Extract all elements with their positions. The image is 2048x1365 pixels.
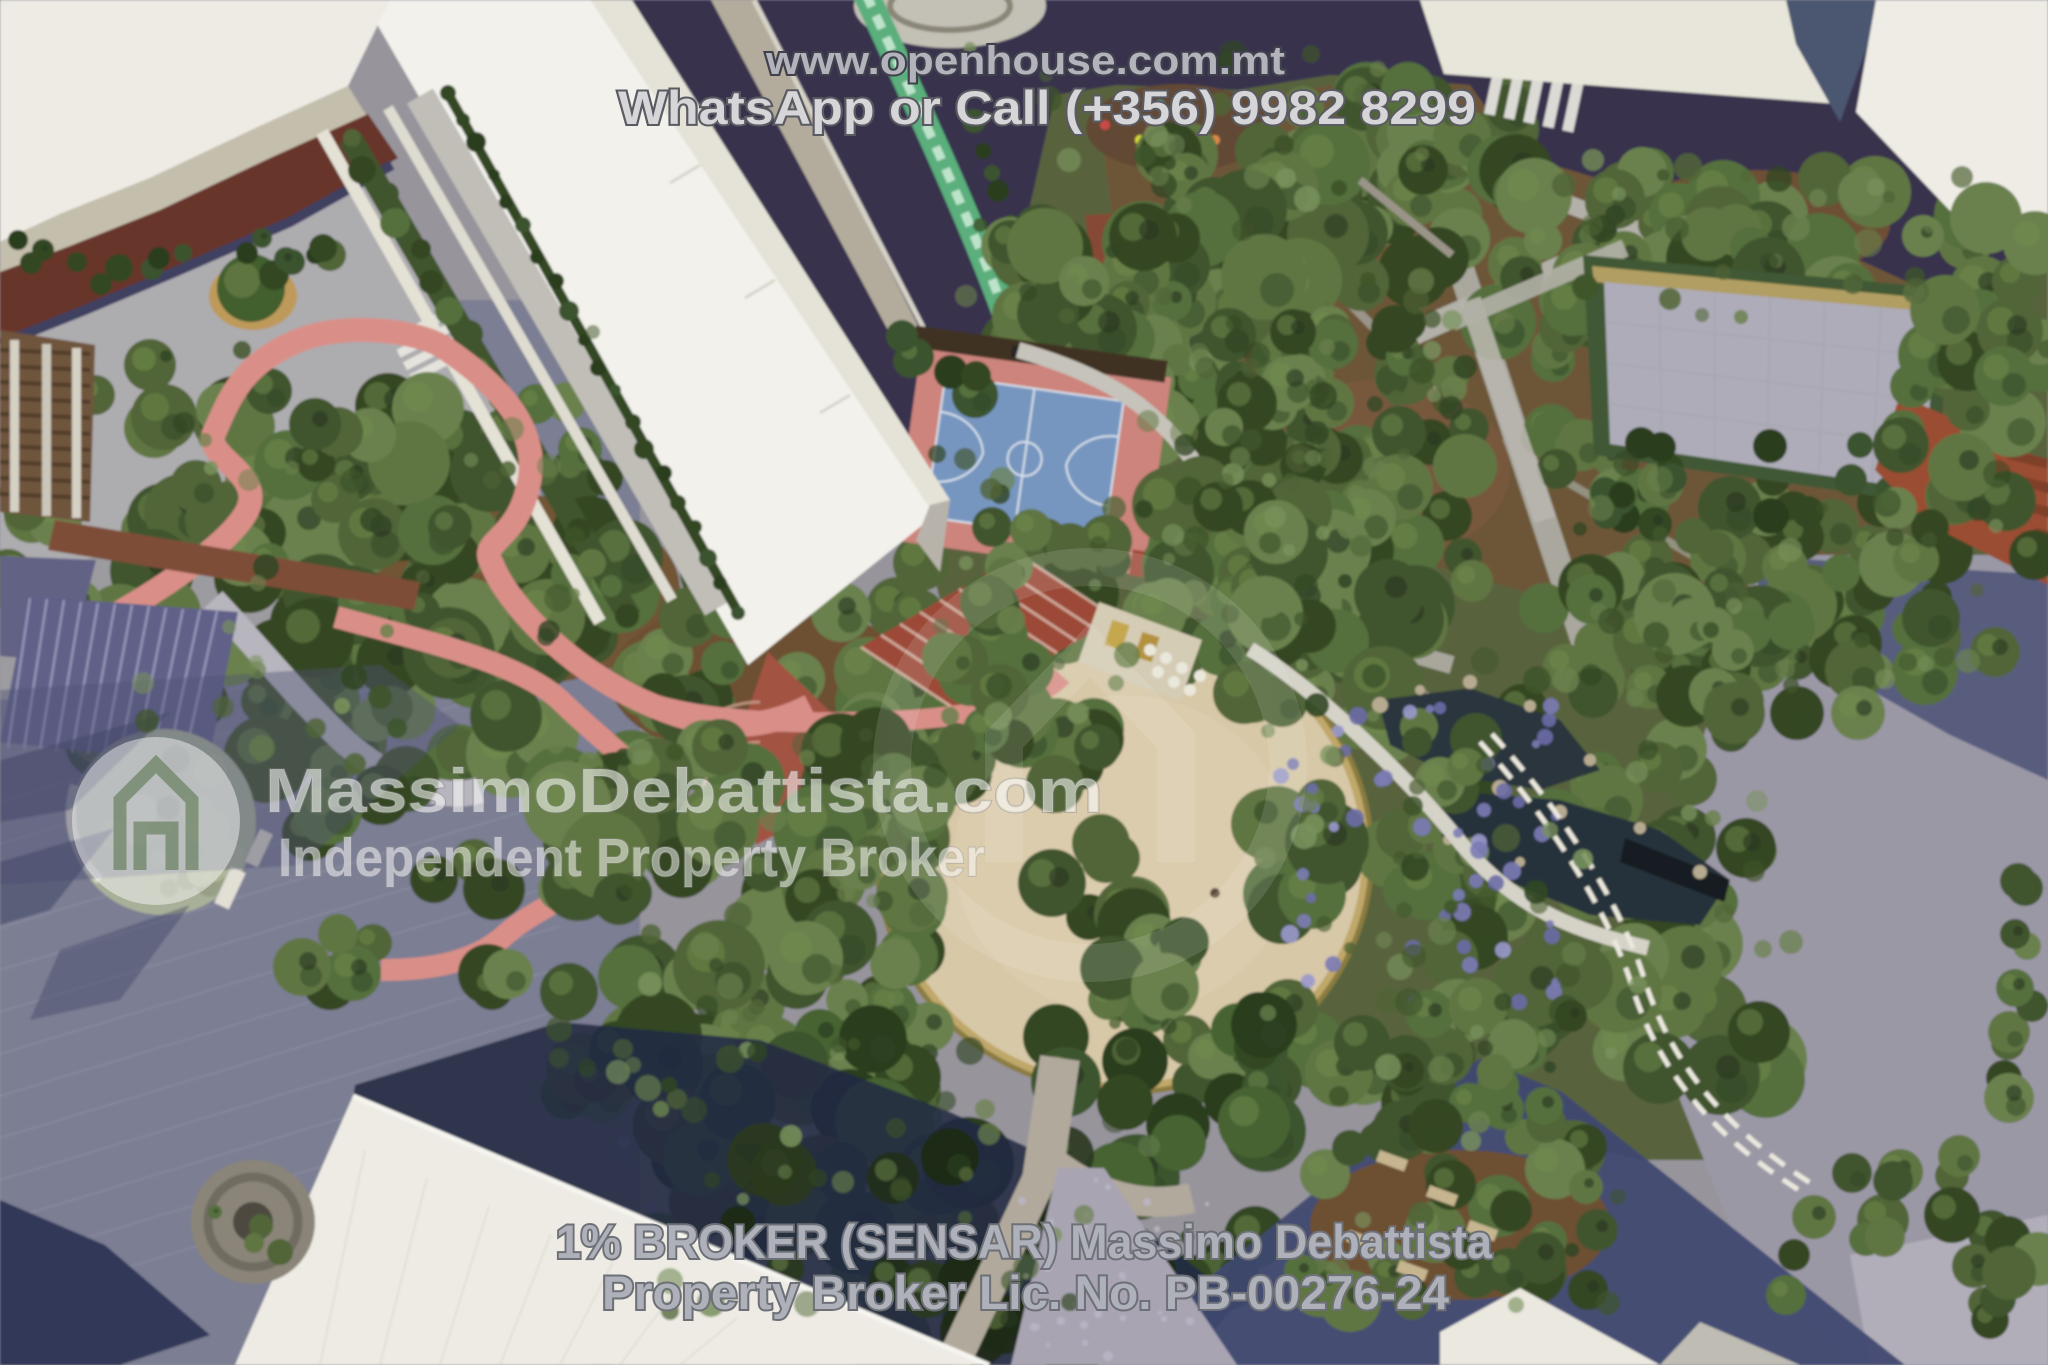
svg-text:Property Broker Lic. No. PB-00: Property Broker Lic. No. PB-00276-24	[602, 1266, 1449, 1319]
svg-text:MassimoDebattista.com: MassimoDebattista.com	[265, 757, 1103, 826]
svg-text:www.openhouse.com.mt: www.openhouse.com.mt	[765, 39, 1285, 83]
svg-text:1% BROKER (SENSAR) Massimo Deb: 1% BROKER (SENSAR) Massimo Debattista	[556, 1215, 1493, 1268]
svg-text:Independent Property Broker: Independent Property Broker	[278, 828, 985, 888]
svg-text:WhatsApp or Call (+356) 9982 8: WhatsApp or Call (+356) 9982 8299	[618, 81, 1476, 134]
